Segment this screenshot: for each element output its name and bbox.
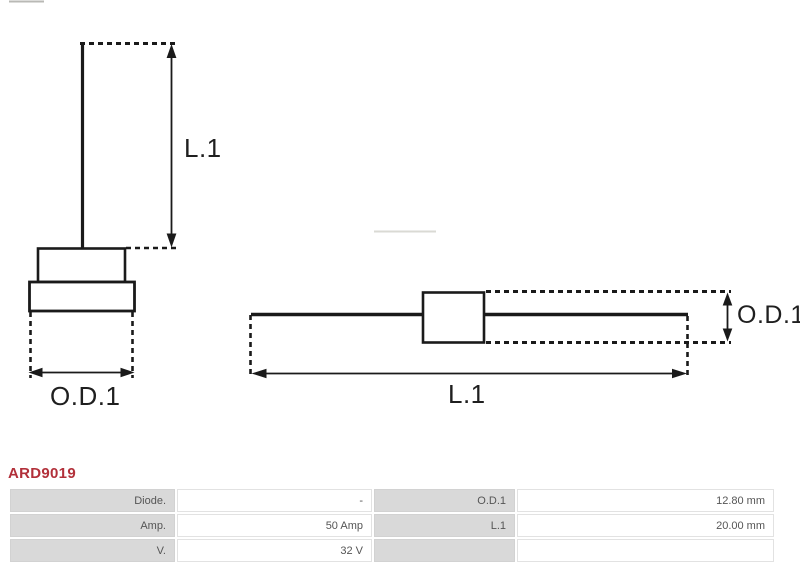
side-body <box>423 293 484 343</box>
spec-label-l1: L.1 <box>374 514 515 537</box>
spec-label-v: V. <box>10 539 175 562</box>
dim-label-front-od1: O.D.1 <box>50 383 120 409</box>
dim-label-side-l1: L.1 <box>448 381 486 407</box>
side-view <box>251 292 733 379</box>
spec-value-v: 32 V <box>177 539 372 562</box>
dim-label-front-l1: L.1 <box>184 135 222 161</box>
technical-drawing <box>0 0 800 440</box>
front-body-lower <box>30 282 135 311</box>
page: L.1 O.D.1 O.D.1 L.1 ARD9019 Diode. - O.D… <box>0 0 800 567</box>
spec-value-amp: 50 Amp <box>177 514 372 537</box>
spec-label-amp: Amp. <box>10 514 175 537</box>
product-code: ARD9019 <box>8 465 76 482</box>
table-row: Diode. - O.D.1 12.80 mm <box>10 489 774 512</box>
dim-label-side-od1: O.D.1 <box>737 303 800 328</box>
spec-label-diode: Diode. <box>10 489 175 512</box>
spec-value-od1: 12.80 mm <box>517 489 774 512</box>
spec-label-empty <box>374 539 515 562</box>
spec-table: Diode. - O.D.1 12.80 mm Amp. 50 Amp L.1 … <box>8 487 776 564</box>
spec-label-od1: O.D.1 <box>374 489 515 512</box>
spec-value-l1: 20.00 mm <box>517 514 774 537</box>
table-row: Amp. 50 Amp L.1 20.00 mm <box>10 514 774 537</box>
scan-artifacts <box>9 2 436 232</box>
front-body-upper <box>38 249 125 283</box>
spec-value-diode: - <box>177 489 372 512</box>
table-row: V. 32 V <box>10 539 774 562</box>
spec-value-empty <box>517 539 774 562</box>
front-view <box>29 43 177 378</box>
